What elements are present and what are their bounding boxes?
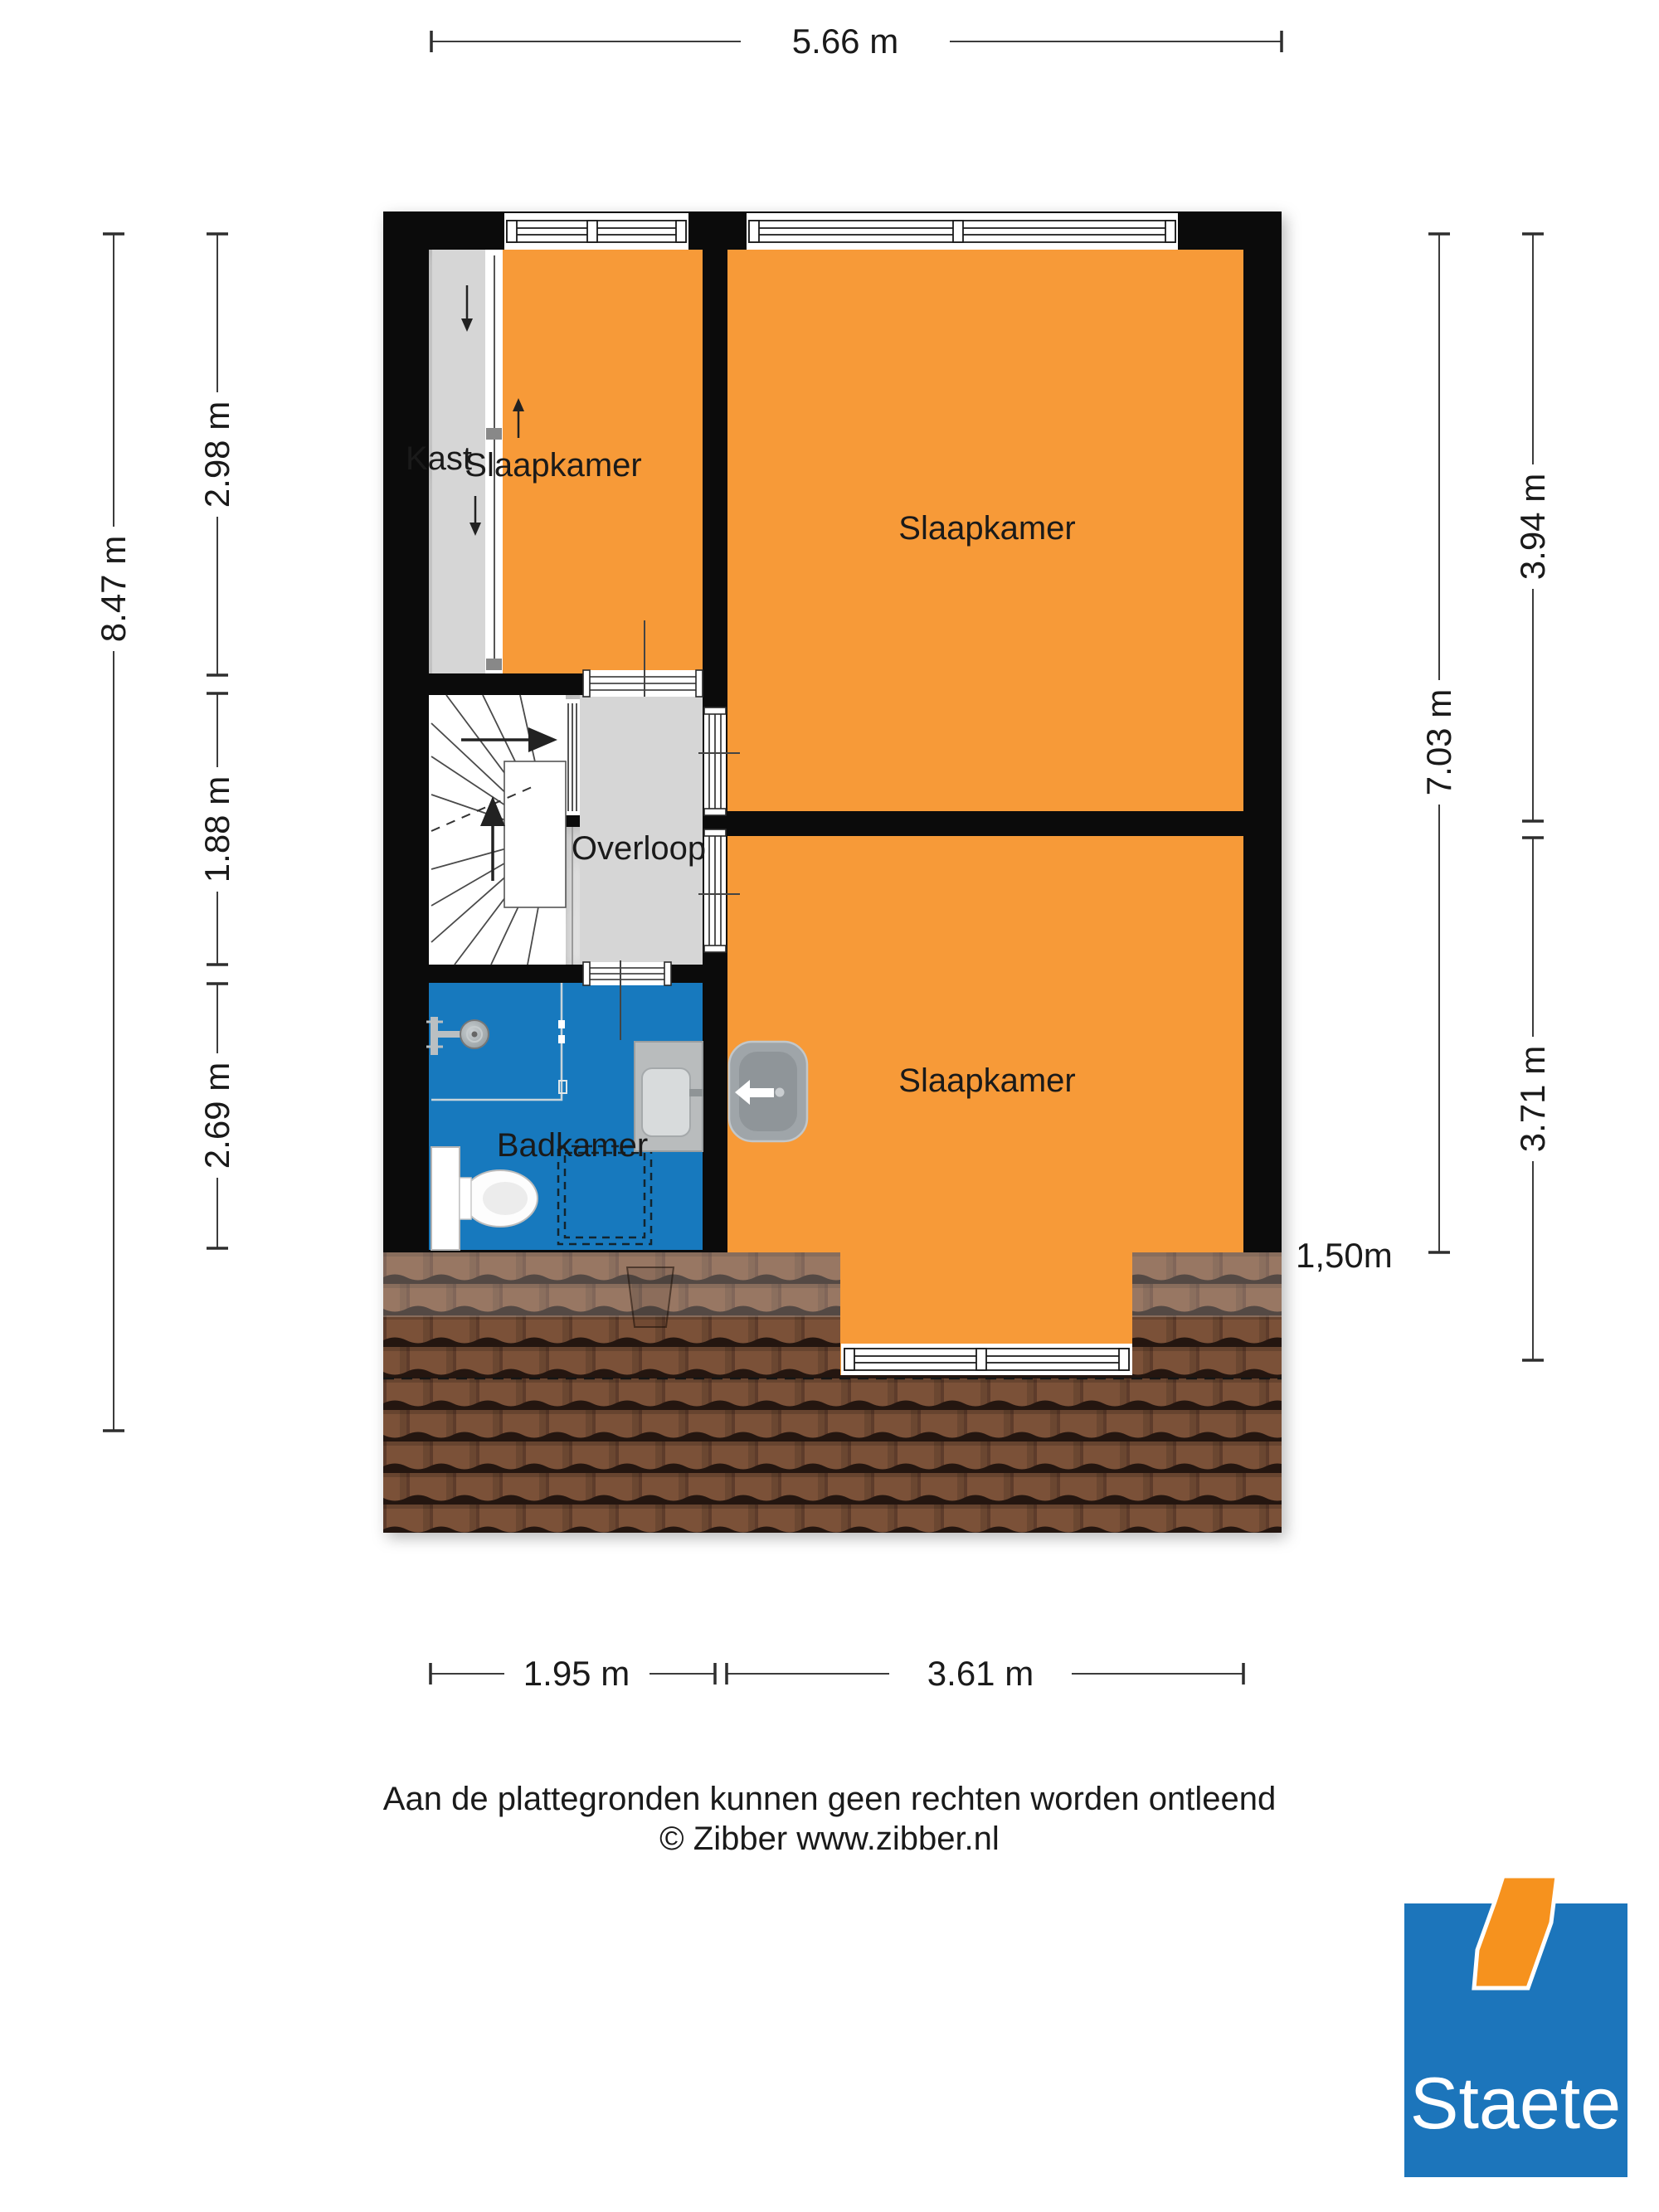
dim-label-left-3: 2.69 m <box>197 1062 236 1169</box>
dim-bottom-segment-2: 3.61 m <box>727 1654 1243 1693</box>
dim-label-bottom-2: 3.61 m <box>927 1654 1034 1693</box>
room-label-slaapkamer-2: Slaapkamer <box>898 510 1075 547</box>
logo-wordmark: Staete <box>1410 2062 1621 2144</box>
dim-top-width: 5.66 m <box>431 22 1282 61</box>
floor-plan: Kast Slaapkamer Slaapkamer Slaapkamer Ov… <box>0 0 1659 2212</box>
floorplan-page: Kast Slaapkamer Slaapkamer Slaapkamer Ov… <box>0 0 1659 2212</box>
dim-left-segment-1: 2.98 m <box>197 234 236 675</box>
dim-label-left-overall: 8.47 m <box>94 536 133 642</box>
headroom-label: 1,50m <box>1296 1236 1393 1275</box>
dim-left-overall: 8.47 m <box>94 234 133 1431</box>
dim-label-bottom-1: 1.95 m <box>523 1654 630 1693</box>
room-label-kast: Kast <box>406 440 472 477</box>
dim-label-left-2: 1.88 m <box>197 776 236 882</box>
dim-left-segment-2: 1.88 m <box>197 693 236 965</box>
dim-right-overall: 7.03 m <box>1419 234 1458 1252</box>
dim-label-top-width: 5.66 m <box>792 22 898 61</box>
window-dormer-icon <box>841 1344 1132 1375</box>
room-slaapkamer-3-dormer <box>840 836 1132 1375</box>
dim-label-left-1: 2.98 m <box>197 401 236 508</box>
footer-disclaimer: Aan de plattegronden kunnen geen rechten… <box>383 1781 1276 1817</box>
room-label-badkamer: Badkamer <box>497 1127 648 1164</box>
room-label-overloop: Overloop <box>572 830 706 867</box>
footer-copyright: © Zibber www.zibber.nl <box>659 1821 1000 1857</box>
dim-bottom-segment-1: 1.95 m <box>431 1654 715 1693</box>
dim-right-segment-1: 3.94 m <box>1513 234 1552 821</box>
dim-label-right-1: 3.94 m <box>1513 474 1552 580</box>
window-top-right-icon <box>747 213 1178 250</box>
room-label-slaapkamer-3: Slaapkamer <box>898 1062 1075 1099</box>
dim-label-right-2: 3.71 m <box>1513 1046 1552 1152</box>
bedroom-sink-icon <box>729 1042 807 1141</box>
roof-tiles <box>383 1252 1282 1533</box>
roof-vent-outline <box>627 1267 674 1327</box>
dim-right-segment-2: 3.71 m <box>1513 838 1552 1360</box>
window-top-left-icon <box>504 213 688 250</box>
dim-left-segment-3: 2.69 m <box>197 984 236 1248</box>
staete-logo: Staete <box>1404 1876 1627 2177</box>
dim-label-right-overall: 7.03 m <box>1419 689 1458 795</box>
room-label-slaapkamer-1: Slaapkamer <box>465 447 641 484</box>
floor-plan-drawing: Kast Slaapkamer Slaapkamer Slaapkamer Ov… <box>383 211 1282 1533</box>
